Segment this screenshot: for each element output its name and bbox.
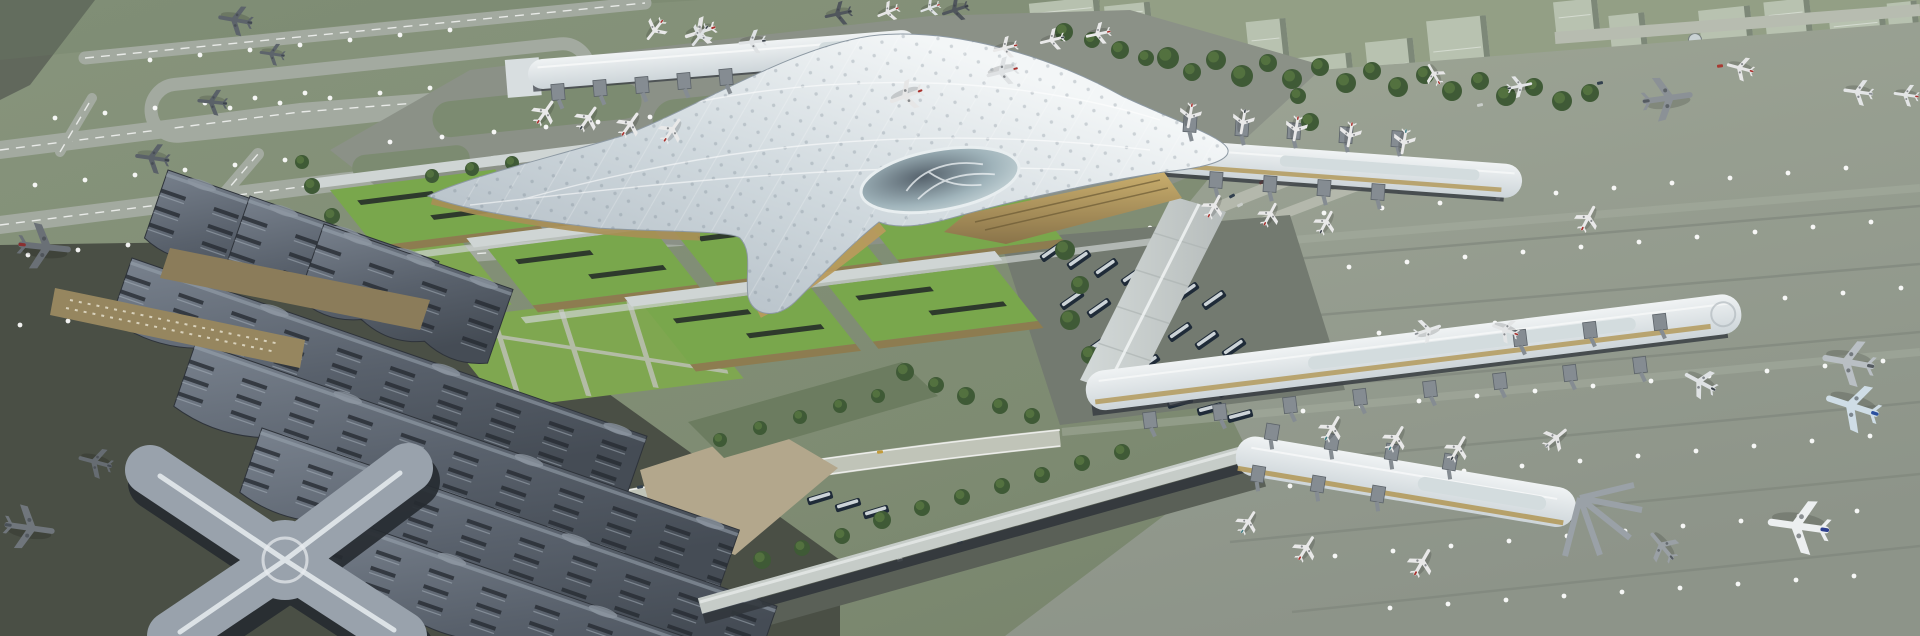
tree-highlight — [1116, 445, 1125, 454]
apron-light-dot — [1333, 554, 1338, 559]
apron-light-dot — [1823, 364, 1828, 369]
apron-light-dot — [1463, 255, 1468, 260]
apron-light-dot — [1852, 574, 1857, 579]
apron-light-dot — [1670, 181, 1675, 186]
tree-highlight — [1208, 52, 1219, 63]
tree-highlight — [506, 157, 514, 165]
apron-light-dot — [1786, 171, 1791, 176]
apron-light-dot — [448, 28, 453, 33]
tree-highlight — [1498, 88, 1509, 99]
apron-light-dot — [596, 120, 601, 125]
jet-bridge-box — [1370, 485, 1385, 503]
tree-highlight — [1076, 456, 1085, 465]
jet-bridge-box — [1213, 403, 1228, 420]
apron-light-dot — [1347, 265, 1352, 270]
tree-highlight — [1083, 347, 1093, 357]
apron-light-dot — [1391, 549, 1396, 554]
tree-highlight — [1338, 75, 1349, 86]
apron-light-dot — [126, 243, 131, 248]
apron-light-dot — [1301, 409, 1306, 414]
tree-highlight — [898, 364, 908, 374]
tree-highlight — [1583, 85, 1593, 95]
apron-light-dot — [53, 116, 58, 121]
apron-light-dot — [1752, 444, 1757, 449]
tree-highlight — [1185, 64, 1195, 74]
jet-bridge-box — [1633, 356, 1648, 373]
tree-highlight — [1313, 59, 1323, 69]
tree-highlight — [1554, 93, 1565, 104]
apron-light-dot — [1521, 250, 1526, 255]
apron-light-dot — [153, 106, 158, 111]
tree-highlight — [426, 170, 434, 178]
apron-light-dot — [228, 106, 233, 111]
apron-light-dot — [33, 183, 38, 188]
apron-light-dot — [1855, 509, 1860, 514]
apron-light-dot — [1811, 225, 1816, 230]
apron-light-dot — [1637, 240, 1642, 245]
apron-light-dot — [328, 96, 333, 101]
apron-light-dot — [66, 319, 71, 324]
apron-light-dot — [1475, 394, 1480, 399]
apron-light-dot — [1810, 439, 1815, 444]
jet-bridge-box — [551, 83, 565, 100]
apron-light-dot — [83, 178, 88, 183]
apron-light-dot — [1579, 245, 1584, 250]
apron-light-dot — [148, 58, 153, 63]
apron-light-dot — [1869, 220, 1874, 225]
apron-light-dot — [1507, 539, 1512, 544]
jet-bridge-box — [1283, 396, 1298, 413]
apron-light-dot — [278, 101, 283, 106]
tree-highlight — [1159, 49, 1171, 61]
apron-light-dot — [1765, 369, 1770, 374]
tree-highlight — [754, 422, 762, 430]
apron-light-dot — [1533, 389, 1538, 394]
tree-highlight — [1365, 63, 1375, 73]
tree-highlight — [1140, 51, 1149, 60]
apron-light-dot — [248, 48, 253, 53]
tree-highlight — [1026, 409, 1035, 418]
apron-light-dot — [1649, 379, 1654, 384]
apron-light-dot — [1405, 260, 1410, 265]
apron-light-dot — [1794, 578, 1799, 583]
apron-light-dot — [492, 130, 497, 135]
tree-highlight — [994, 399, 1003, 408]
apron-light-dot — [1844, 166, 1849, 171]
airport-rendering — [0, 0, 1920, 636]
tree-highlight — [1444, 83, 1455, 94]
tree-highlight — [306, 179, 315, 188]
jet-bridge-box — [1317, 180, 1331, 197]
apron-light-dot — [1636, 454, 1641, 459]
jet-bridge-box — [1209, 172, 1223, 189]
apron-light-dot — [298, 43, 303, 48]
tree-highlight — [956, 490, 965, 499]
jet-bridge-box — [1353, 388, 1368, 405]
jet-bridge-box — [1310, 475, 1325, 493]
jet-bridge-box — [1371, 184, 1385, 201]
apron-light-dot — [103, 111, 108, 116]
apron-light-dot — [1620, 590, 1625, 595]
apron-light-dot — [348, 38, 353, 43]
tree-highlight — [930, 378, 939, 387]
apron-light-dot — [1841, 291, 1846, 296]
tree-highlight — [326, 209, 335, 218]
jet-bridge-box — [1423, 380, 1438, 397]
apron-light-dot — [1388, 606, 1393, 611]
apron-light-dot — [198, 53, 203, 58]
apron-light-dot — [76, 248, 81, 253]
apron-light-dot — [1591, 384, 1596, 389]
apron-light-dot — [183, 168, 188, 173]
tree-highlight — [872, 390, 880, 398]
apron-light-dot — [1739, 519, 1744, 524]
apron-light-dot — [1504, 598, 1509, 603]
apron-light-dot — [1449, 544, 1454, 549]
tree-highlight — [1073, 277, 1083, 287]
apron-light-dot — [18, 323, 23, 328]
jet-bridge-box — [1583, 321, 1598, 338]
apron-light-dot — [1868, 434, 1873, 439]
apron-light-dot — [1899, 286, 1904, 291]
tree-highlight — [996, 479, 1005, 488]
jet-bridge-box — [1250, 465, 1265, 483]
apron-light-dot — [1417, 399, 1422, 404]
tree-highlight — [836, 529, 845, 538]
apron-light-dot — [378, 91, 383, 96]
apron-light-dot — [1736, 582, 1741, 587]
apron-light-dot — [1695, 235, 1700, 240]
apron-light-dot — [1881, 359, 1886, 364]
apron-light-dot — [1694, 449, 1699, 454]
apron-light-dot — [233, 163, 238, 168]
tree-highlight — [296, 156, 304, 164]
jet-bridge-box — [677, 72, 691, 89]
apron-light-dot — [1562, 594, 1567, 599]
apron-light-dot — [1783, 296, 1788, 301]
tree-highlight — [875, 512, 885, 522]
tree-highlight — [1292, 89, 1301, 98]
tree-highlight — [714, 434, 722, 442]
apron-light-dot — [303, 91, 308, 96]
tree-highlight — [796, 541, 805, 550]
apron-light-dot — [283, 158, 288, 163]
apron-light-dot — [1678, 586, 1683, 591]
tree-highlight — [755, 552, 765, 562]
tree-highlight — [1261, 55, 1271, 65]
tree-highlight — [1303, 114, 1313, 124]
apron-light-dot — [1728, 176, 1733, 181]
apron-light-dot — [1438, 201, 1443, 206]
tree-highlight — [1233, 67, 1245, 79]
jet-bridge-box — [719, 68, 733, 85]
apron-light-dot — [1288, 484, 1293, 489]
jet-bridge-box — [1653, 313, 1668, 330]
tree-highlight — [959, 388, 969, 398]
apron-light-dot — [1578, 459, 1583, 464]
jet-bridge-box — [1563, 364, 1578, 381]
tree-highlight — [1057, 24, 1067, 34]
apron-light-dot — [133, 173, 138, 178]
tree-highlight — [1418, 67, 1428, 77]
apron-light-dot — [388, 140, 393, 145]
apron-light-dot — [1554, 191, 1559, 196]
jet-bridge-box — [593, 79, 607, 96]
apron-light-dot — [1612, 186, 1617, 191]
jet-bridge-box — [1263, 176, 1277, 193]
tree-highlight — [916, 501, 925, 510]
tree-highlight — [1473, 73, 1483, 83]
apron-light-dot — [253, 96, 258, 101]
apron-light-dot — [1377, 331, 1382, 336]
apron-light-dot — [1322, 211, 1327, 216]
apron-light-dot — [1681, 524, 1686, 529]
tree-highlight — [1284, 71, 1295, 82]
apron-light-dot — [428, 86, 433, 91]
tree-highlight — [1113, 42, 1123, 52]
apron-light-dot — [1753, 230, 1758, 235]
apron-light-dot — [1520, 464, 1525, 469]
jet-bridge-box — [635, 76, 649, 93]
tree-highlight — [1036, 468, 1045, 477]
tree-highlight — [834, 400, 842, 408]
tree-highlight — [1390, 79, 1401, 90]
apron-light-dot — [398, 33, 403, 38]
jet-bridge-box — [1264, 423, 1279, 441]
apron-light-dot — [544, 125, 549, 130]
jet-bridge-box — [1143, 411, 1158, 428]
jet-bridge-box — [1493, 372, 1508, 389]
tree-highlight — [466, 163, 474, 171]
tree-highlight — [794, 411, 802, 419]
tree-highlight — [1057, 242, 1068, 253]
tree-highlight — [1062, 312, 1073, 323]
apron-light-dot — [648, 115, 653, 120]
apron-light-dot — [1446, 602, 1451, 607]
apron-light-dot — [440, 135, 445, 140]
